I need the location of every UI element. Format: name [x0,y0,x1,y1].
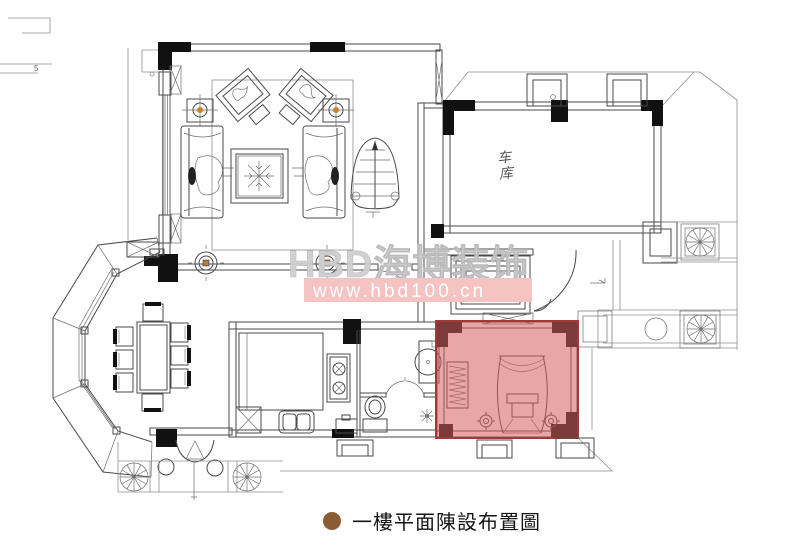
tree-walkway [680,311,720,348]
dining-chair [171,346,191,365]
armchair-right [270,68,333,132]
dining-chair-head [143,302,163,321]
column-circle [645,318,667,340]
garage-label: 车库 [494,149,513,182]
dining-chair [171,323,191,342]
column-southeast [643,222,677,263]
tree-porch [233,463,261,491]
dining-chair [171,369,191,388]
south-terrace [337,438,594,458]
dining-chair [113,327,133,346]
bay-window [53,238,160,477]
coffee-table-rug [231,149,288,203]
spiral-staircase [351,138,399,218]
tree-porch [120,463,148,491]
dining-chair-foot [142,394,163,412]
walkways [578,222,737,348]
side-vestibule [578,311,612,347]
entry-door-arc [534,250,576,311]
window-upper-right [436,60,442,100]
dining-table [137,322,170,393]
sofa-left [181,126,234,218]
stair-direction-arrow [372,141,378,150]
exterior-note: 5 [34,64,39,73]
bathroom [357,330,441,437]
terrace-column [337,440,373,456]
floor-plan-page: 5 [0,0,800,551]
caption-text: 一樓平面陳設布置圖 [352,511,541,534]
lamp-table-right [318,94,354,127]
watermark-url: www.hbd100.cn [312,281,486,302]
window-left [159,66,181,243]
entry-direction-arrow [590,278,605,283]
medallion-icon [244,161,274,191]
column-top-1 [527,74,567,106]
dining-chair [113,350,133,369]
caption-bullet-icon [323,512,341,530]
caption: 一樓平面陳設布置圖 [323,511,541,534]
tree-garage [681,224,719,260]
armchair-left [216,68,279,132]
shower-icon [420,409,434,423]
highlighted-bedroom [436,321,578,438]
sofa-right [292,126,345,218]
watermark: HBD海博装饰 www.hbd100.cn [288,244,532,302]
lamp-table-left [182,94,218,127]
platform [239,333,323,410]
lamp-icon [333,107,339,113]
kitchen-room [229,319,437,438]
porch-column [207,460,223,476]
floor-plan-drawing: 5 [0,0,800,551]
column-top-2 [607,74,647,106]
entry-porch [118,440,283,500]
highlight-overlay [436,321,578,438]
terrace-column [477,440,512,458]
porch-double-door [176,440,214,462]
dining-chair [113,373,133,392]
toilet [363,396,387,432]
stove-burners [327,354,350,402]
garage: 车库 [431,74,719,263]
cabinet-cross [236,407,261,433]
lamp-icon [197,107,203,113]
